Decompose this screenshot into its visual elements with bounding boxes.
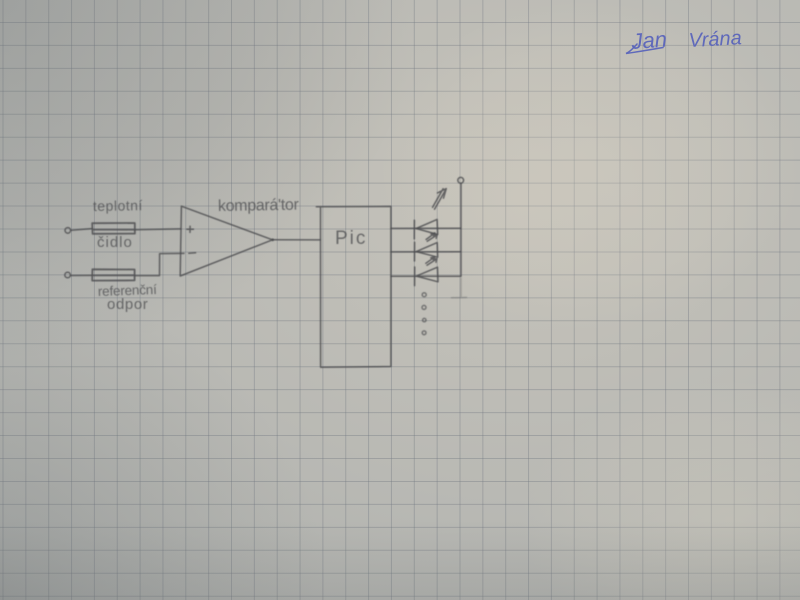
svg-text:odpor: odpor <box>107 296 148 313</box>
svg-text:čidlo: čidlo <box>97 234 133 251</box>
svg-text:teplotní: teplotní <box>93 197 143 214</box>
svg-text:Pic: Pic <box>335 228 367 249</box>
svg-text:kompará'tor: kompará'tor <box>218 197 300 215</box>
svg-text:Vrána: Vrána <box>688 27 742 52</box>
